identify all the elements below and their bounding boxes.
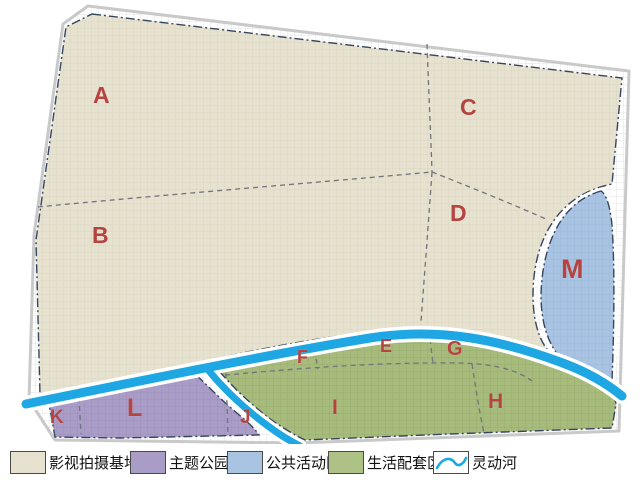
zone-label-k: K	[50, 408, 64, 427]
legend-label: 灵动河	[472, 452, 517, 473]
zone-label-m: M	[561, 256, 584, 283]
zone-label-e: E	[380, 337, 392, 355]
zone-label-c: C	[460, 96, 477, 119]
zone-label-j: J	[240, 408, 251, 427]
legend-item-theme-park: 主题公园	[130, 447, 229, 477]
map-canvas: A B C D E F G H I J K L M	[0, 0, 640, 445]
legend-label: 生活配套区	[367, 452, 442, 473]
zone-label-a: A	[93, 84, 110, 107]
legend-item-river: 灵动河	[433, 447, 517, 477]
zone-label-b: B	[92, 224, 109, 247]
river-legend-icon	[433, 451, 469, 474]
legend-item-film-base: 影视拍摄基地	[10, 447, 139, 477]
zone-label-f: F	[297, 348, 308, 366]
zone-label-l: L	[127, 396, 142, 421]
public-activity-swatch	[227, 451, 263, 474]
zone-label-d: D	[450, 202, 467, 225]
legend-label: 影视拍摄基地	[49, 452, 139, 473]
planning-map-screenshot: A B C D E F G H I J K L M 影视拍摄基地 主题公园 公共…	[0, 0, 640, 480]
theme-park-swatch	[130, 451, 166, 474]
film-base-swatch	[10, 451, 46, 474]
legend-bar: 影视拍摄基地 主题公园 公共活动区 生活配套区 灵动河	[0, 444, 640, 480]
zone-label-i: I	[332, 397, 338, 418]
living-support-swatch	[328, 451, 364, 474]
legend-label: 主题公园	[169, 452, 229, 473]
legend-item-living-support: 生活配套区	[328, 447, 442, 477]
river-wave-icon	[434, 452, 468, 473]
legend-item-public-activity: 公共活动区	[227, 447, 341, 477]
zone-label-h: H	[488, 391, 503, 412]
zone-label-g: G	[447, 339, 463, 359]
